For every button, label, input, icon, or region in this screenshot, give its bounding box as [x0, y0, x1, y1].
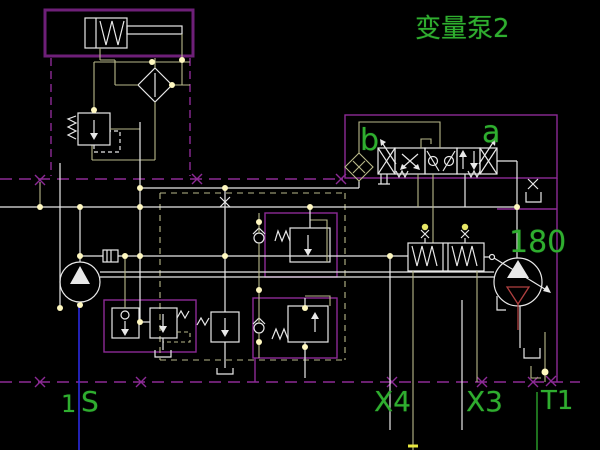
cartridge-valves-symbol — [112, 256, 190, 357]
port-x4-label: X4 — [374, 388, 411, 416]
pressure-relief-valve-symbol — [68, 62, 190, 152]
pilot-port-lines — [390, 256, 537, 450]
variable-main-pump-symbol — [494, 258, 542, 330]
displacement-label: 180 — [509, 228, 566, 258]
pilot-piston-symbol — [85, 18, 190, 85]
pilot-valve-b-symbol — [253, 277, 330, 378]
cad-point-markers — [35, 174, 556, 387]
port-x3-label: X3 — [466, 388, 503, 416]
relief-valve-2-symbol — [197, 312, 239, 374]
frame-lines — [0, 10, 580, 382]
cad-canvas[interactable]: 变量泵2 b a 180 1 S X4 X3 T1 — [0, 0, 600, 450]
port-t1-label: T1 — [541, 388, 573, 414]
port-s-label: S — [81, 388, 99, 416]
solenoid-a-label: a — [482, 118, 500, 148]
drawing-title: 变量泵2 — [415, 16, 510, 42]
port-1-label: 1 — [61, 392, 76, 416]
junction-dots — [37, 57, 549, 376]
solenoid-b-label: b — [360, 126, 379, 156]
